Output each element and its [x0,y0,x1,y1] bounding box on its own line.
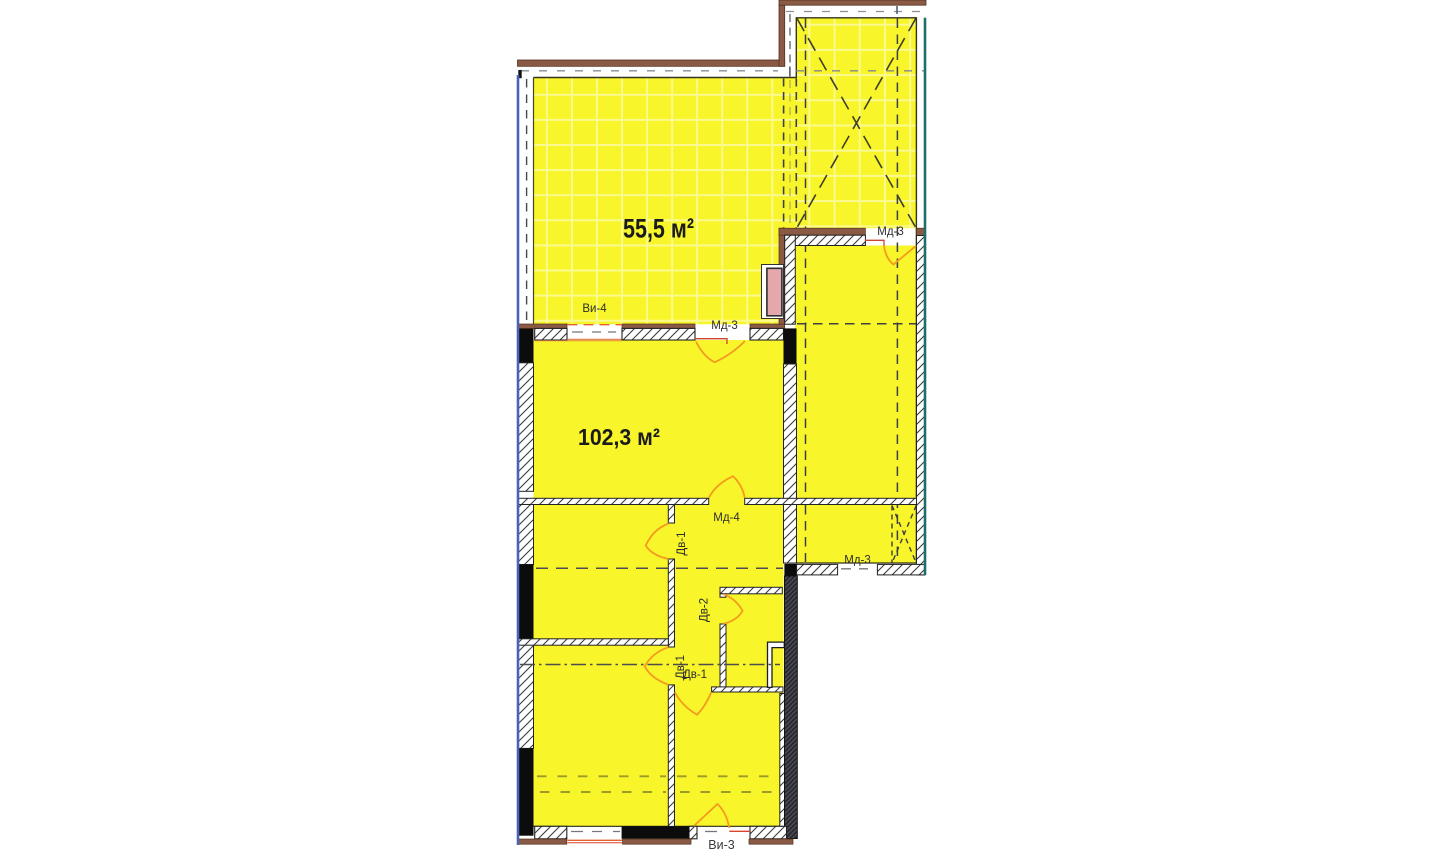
svg-text:Мд-3: Мд-3 [711,320,738,332]
svg-text:Ви-4: Ви-4 [582,303,607,315]
svg-text:Мд-4: Мд-4 [713,512,740,524]
svg-text:Мд-3: Мд-3 [877,226,904,238]
svg-text:Мд-3: Мд-3 [844,555,871,567]
svg-text:Дв-2: Дв-2 [699,598,711,622]
svg-text:102,3 м²: 102,3 м² [578,424,660,450]
svg-text:Дв-1: Дв-1 [683,669,707,681]
svg-text:55,5 м²: 55,5 м² [623,214,694,244]
svg-text:Ви-3: Ви-3 [708,838,734,850]
svg-text:Дв-1: Дв-1 [676,531,688,555]
